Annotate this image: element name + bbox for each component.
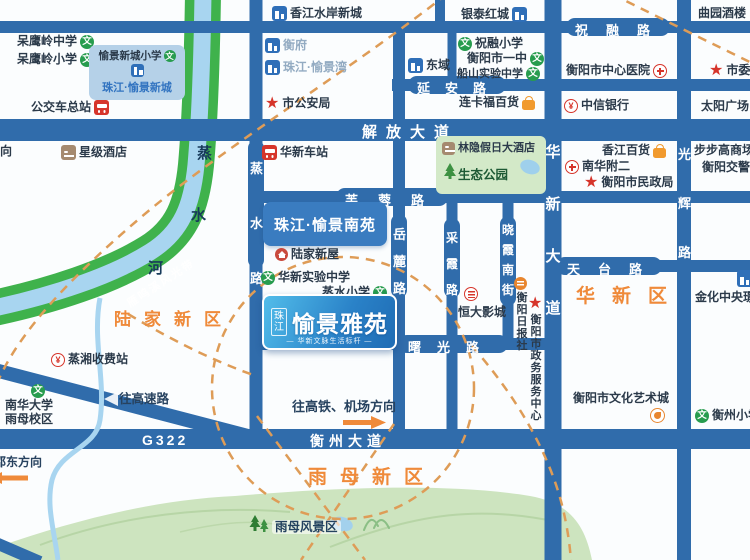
poi-nanyuan-project: 珠江·愉景南苑 bbox=[263, 202, 387, 246]
poi-hengyang-yizhong: 衡阳市一中 bbox=[467, 52, 544, 66]
poi-hengzhou-primary: 衡州小学 bbox=[695, 409, 750, 423]
poi-zhengwu-center: 衡阳市政务服务中心 bbox=[529, 314, 543, 422]
poi-hengfu: 衡府 bbox=[265, 38, 307, 53]
star-icon bbox=[584, 176, 598, 190]
school-icon bbox=[261, 271, 275, 285]
poi-hengyang-jiaojing: 衡阳交警 bbox=[702, 161, 750, 175]
poi-direction-partial: 向 bbox=[0, 145, 12, 159]
building-icon bbox=[408, 58, 423, 73]
road-label-tiantai: 天台路 bbox=[567, 259, 660, 278]
school-icon bbox=[31, 384, 45, 398]
region-yumu: 雨母新区 bbox=[308, 462, 436, 489]
toll-icon bbox=[51, 353, 65, 367]
road-label-huaxin-ave: 华新大道 bbox=[544, 127, 562, 335]
newspaper-icon bbox=[514, 277, 527, 290]
poi-shaodong-direction: 邵东方向 bbox=[0, 456, 42, 470]
poi-huaxin-station: 华新车站 bbox=[262, 145, 328, 160]
logo-tagline: — 华新文脉生活标杆 — bbox=[264, 336, 395, 346]
poi-to-expressway: 往高速路 bbox=[119, 392, 169, 406]
hotel-icon bbox=[61, 145, 76, 160]
building-icon bbox=[265, 38, 280, 53]
road-label-zhurong: 祝融路 bbox=[575, 20, 668, 39]
poi-yumu-scenic: 雨母风景区 bbox=[272, 520, 341, 534]
poi-bus-terminal: 公交车总站 bbox=[31, 100, 109, 115]
building-icon bbox=[272, 6, 287, 21]
poi-daying-middle-school: 呆鹰岭中学 bbox=[17, 35, 94, 49]
poi-ribaoshe: 衡阳日报社 bbox=[515, 292, 529, 352]
star-icon bbox=[709, 64, 723, 78]
arrow-left-icon bbox=[0, 472, 28, 484]
poi-xiangjiang-shuian: 香江水岸新城 bbox=[272, 6, 362, 21]
poi-zhengxiang-toll: 蒸湘收费站 bbox=[51, 353, 128, 367]
poi-shiwei: 市委 bbox=[709, 64, 750, 78]
poi-zhujiang-yujing-xincheng: 珠江·愉景新城 bbox=[102, 79, 172, 95]
region-lujia: 陆家新区 bbox=[114, 305, 234, 330]
poi-dongyu: 东域 bbox=[408, 58, 450, 73]
poi-zhujiang-yujingwan: 珠江·愉景湾 bbox=[265, 60, 347, 75]
building-icon bbox=[737, 270, 750, 287]
arrow-right-icon bbox=[343, 415, 387, 430]
poi-chuanshan-school: 船山实验中学 bbox=[457, 67, 540, 81]
region-huaxin: 华新区 bbox=[576, 281, 684, 308]
road-label-caixia: 采霞路 bbox=[444, 225, 460, 303]
poi-taiyang-square: 太阳广场 bbox=[701, 100, 749, 114]
poi-quyuan-jiulou: 曲园酒楼 bbox=[698, 7, 746, 21]
poi-linyin-hotel: 林隐假日大酒店 bbox=[442, 142, 535, 155]
star-icon bbox=[528, 297, 542, 311]
logo-name: 愉景雅苑 bbox=[292, 305, 388, 339]
cinema-icon bbox=[464, 287, 478, 301]
bank-icon bbox=[564, 99, 578, 113]
poi-minzhengju: 衡阳市民政局 bbox=[584, 176, 673, 190]
poi-liankafu: 连卡福百货 bbox=[459, 96, 535, 110]
road-label-yuelu: 岳麓路 bbox=[391, 221, 408, 302]
poi-citic-bank: 中信银行 bbox=[564, 99, 629, 113]
shopping-bag-icon bbox=[653, 148, 666, 158]
poi-to-hsr-airport: 往高铁、机场方向 bbox=[292, 400, 396, 415]
school-icon bbox=[526, 67, 540, 81]
hospital-icon bbox=[653, 64, 667, 78]
road-label-g322: G322 bbox=[142, 432, 188, 448]
poi-nanhua-univ-line2: 雨母校区 bbox=[5, 413, 53, 427]
poi-bubugao: 步步高商场 bbox=[694, 144, 750, 158]
bus-icon bbox=[94, 100, 109, 115]
road-label-guanghui: 光辉路 bbox=[676, 130, 693, 277]
tree-icon bbox=[442, 162, 458, 180]
road-label-xiaoxia-south: 晓霞南街 bbox=[500, 220, 516, 300]
poi-yintai-hongcheng: 银泰红城 bbox=[461, 7, 527, 22]
road-label-shuguang: 曙光路 bbox=[408, 337, 495, 356]
poi-shengtai-park: 生态公园 bbox=[458, 168, 508, 182]
star-icon bbox=[265, 97, 279, 111]
poi-zhurong-primary: 祝融小学 bbox=[458, 37, 523, 51]
logo-brand: 珠江 bbox=[271, 308, 287, 336]
road-label-hengzhou-ave: 衡州大道 bbox=[310, 431, 386, 451]
hospital-icon bbox=[565, 160, 579, 174]
art-city-icon bbox=[650, 408, 665, 423]
poi-hengda-cinema: 恒大影城 bbox=[458, 306, 506, 320]
poi-shi-gonganju: 市公安局 bbox=[265, 97, 330, 111]
school-icon bbox=[164, 50, 176, 62]
trees-icon bbox=[248, 513, 272, 537]
poi-ecology-park-box: 林隐假日大酒店 生态公园 bbox=[436, 136, 546, 194]
bus-icon bbox=[262, 145, 277, 160]
poi-central-hospital: 衡阳市中心医院 bbox=[566, 64, 667, 78]
poi-wenhua-art-city: 衡阳市文化艺术城 bbox=[573, 392, 669, 406]
building-icon bbox=[131, 64, 144, 77]
poi-jinhua-central: 金化中央璟 bbox=[695, 291, 750, 305]
park-lake-icon bbox=[518, 157, 541, 176]
poi-lujia-xinwu: 陆家新屋 bbox=[275, 248, 339, 262]
school-icon bbox=[530, 52, 544, 66]
poi-nanhua-univ-line1: 南华大学 bbox=[5, 399, 53, 413]
building-icon bbox=[265, 60, 280, 75]
project-logo-yujing-yayuan: 珠江 愉景雅苑 — 华新文脉生活标杆 — bbox=[262, 294, 397, 350]
building-icon bbox=[512, 7, 527, 22]
poi-daying-primary-school: 呆鹰岭小学 bbox=[17, 53, 94, 67]
heritage-house-icon bbox=[275, 248, 288, 261]
school-icon bbox=[458, 37, 472, 51]
hotel-icon bbox=[442, 142, 455, 155]
poi-nanhua-fuer: 南华附二 bbox=[565, 160, 630, 174]
poi-yujing-xincheng-box: 愉景新城小学 珠江·愉景新城 bbox=[89, 45, 185, 100]
shopping-bag-icon bbox=[522, 100, 535, 110]
poi-xiangjiang-baihuo: 香江百货 bbox=[602, 144, 666, 158]
poi-huaxin-shiyan-school: 华新实验中学 bbox=[261, 271, 350, 285]
river-name-char: 水 bbox=[191, 204, 206, 225]
poi-yujing-xincheng-school: 愉景新城小学 bbox=[99, 50, 176, 62]
real-estate-location-map: 祝融路 延安路 解放大道 芙蓉路 天台路 曙光路 衡州大道 G322 华新大道 … bbox=[0, 0, 750, 560]
school-icon bbox=[695, 409, 709, 423]
poi-xingji-hotel: 星级酒店 bbox=[61, 145, 127, 160]
river-name-char: 蒸 bbox=[197, 142, 212, 163]
